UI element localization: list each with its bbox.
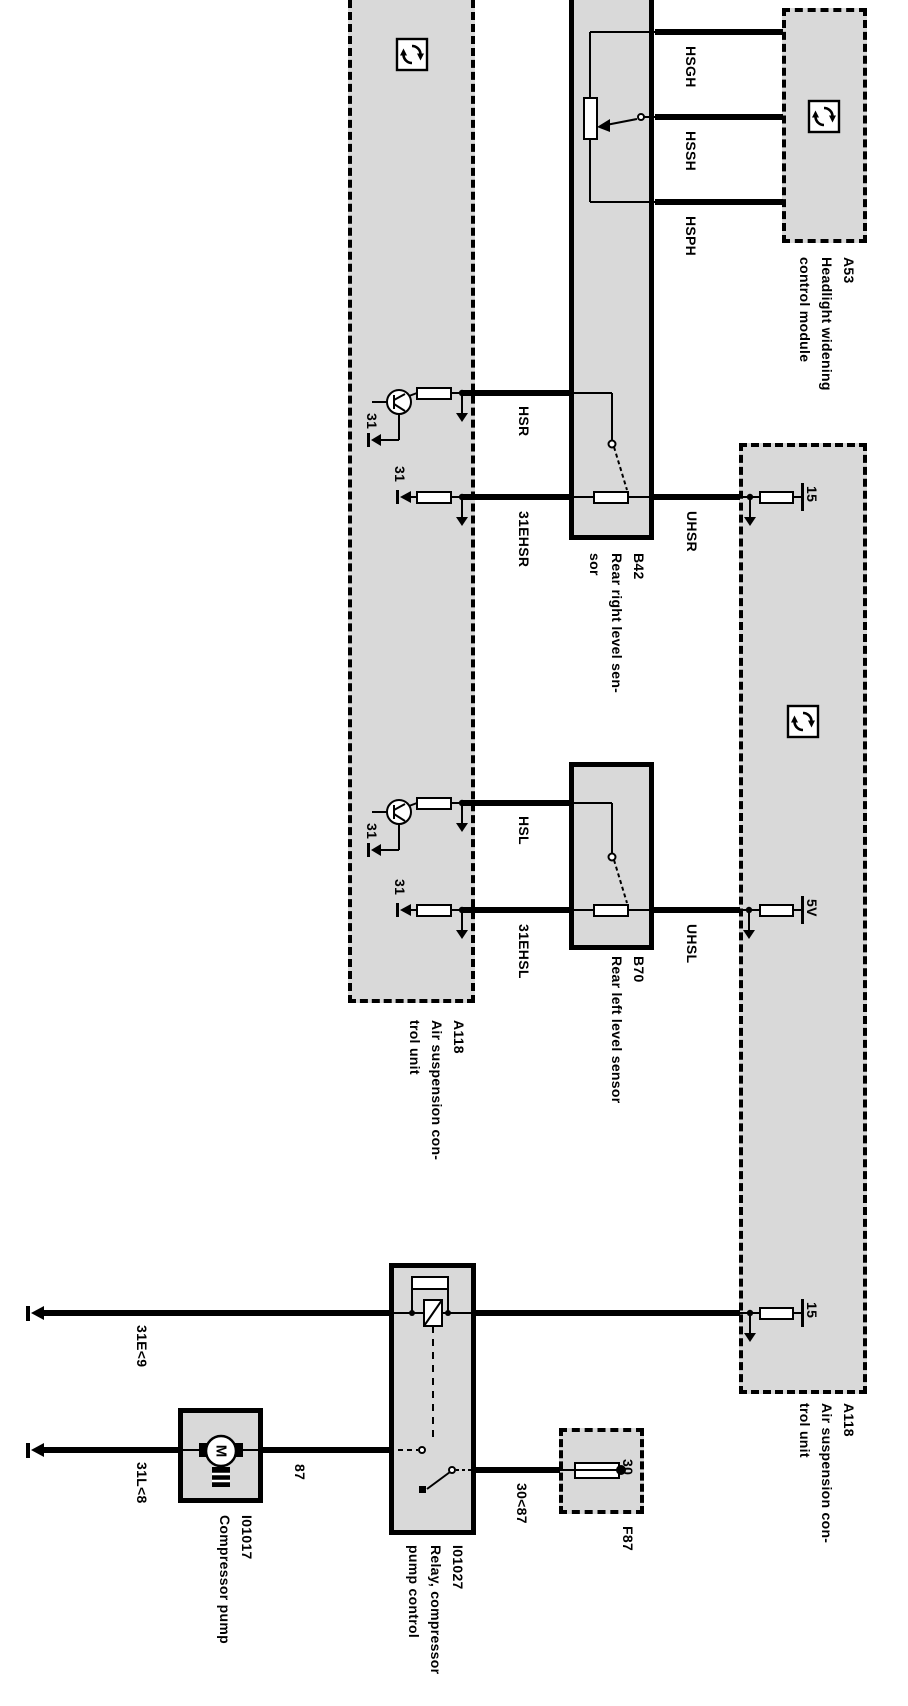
wire-label-hsgh: HSGH	[680, 46, 702, 88]
module-label-a118-right: A118 Air suspension con- trol unit	[794, 1403, 860, 1543]
terminal-label-5v: 5V	[801, 899, 823, 917]
module-label-i01027: I01027 Relay, compressor pump control	[403, 1545, 469, 1674]
terminal-label-31-ehsr: 31	[389, 466, 411, 482]
wire-label-31l8: 31L<8	[131, 1462, 153, 1504]
wire-label-31ehsr: 31EHSR	[513, 511, 535, 567]
module-box-pump	[178, 1408, 263, 1503]
wire-label-hsr: HSR	[513, 406, 535, 436]
module-label-f87: F87	[617, 1526, 639, 1551]
module-box-relay	[389, 1263, 476, 1535]
wire-label-hsl: HSL	[513, 816, 535, 845]
module-box-a118-left	[348, 0, 475, 1003]
terminal-label-30: 30	[617, 1459, 639, 1475]
wire-label-hsph: HSPH	[680, 216, 702, 256]
wire-end-terminal-31e9	[26, 1306, 44, 1321]
wire-label-30-87: 30<87	[511, 1483, 533, 1524]
wire-label-uhsr: UHSR	[681, 511, 703, 552]
module-box-b70	[569, 762, 654, 950]
terminal-label-31-ehsl: 31	[389, 879, 411, 895]
module-label-i01017: I01017 Compressor pump	[214, 1515, 258, 1644]
wire-label-31ehsl: 31EHSL	[513, 924, 535, 979]
wire-label-31e9: 31E<9	[131, 1325, 153, 1367]
terminal-label-31-hsr: 31	[361, 413, 383, 429]
module-label-b42: B42 Rear right level sen- sor	[584, 553, 650, 693]
wire-label-hssh: HSSH	[680, 131, 702, 171]
wire-end-terminal-31l8	[26, 1443, 44, 1458]
module-box-b42	[569, 0, 654, 540]
terminal-label-31-hsl: 31	[361, 823, 383, 839]
module-label-b70: B70 Rear left level sensor	[606, 956, 650, 1103]
wiring-diagram-page: M HSGH HSSH HSPH A53 Headlight widening …	[0, 0, 908, 1706]
wire-label-uhsl: UHSL	[681, 924, 703, 963]
module-label-a53: A53 Headlight widening control module	[794, 257, 860, 391]
module-box-a53	[782, 8, 867, 243]
wire-label-87: 87	[289, 1464, 311, 1480]
terminal-label-15-top: 15	[801, 486, 823, 502]
terminal-label-15-bottom: 15	[801, 1302, 823, 1318]
module-box-a118-right	[739, 443, 867, 1394]
module-label-a118-left: A118 Air suspension con- trol unit	[404, 1020, 470, 1160]
